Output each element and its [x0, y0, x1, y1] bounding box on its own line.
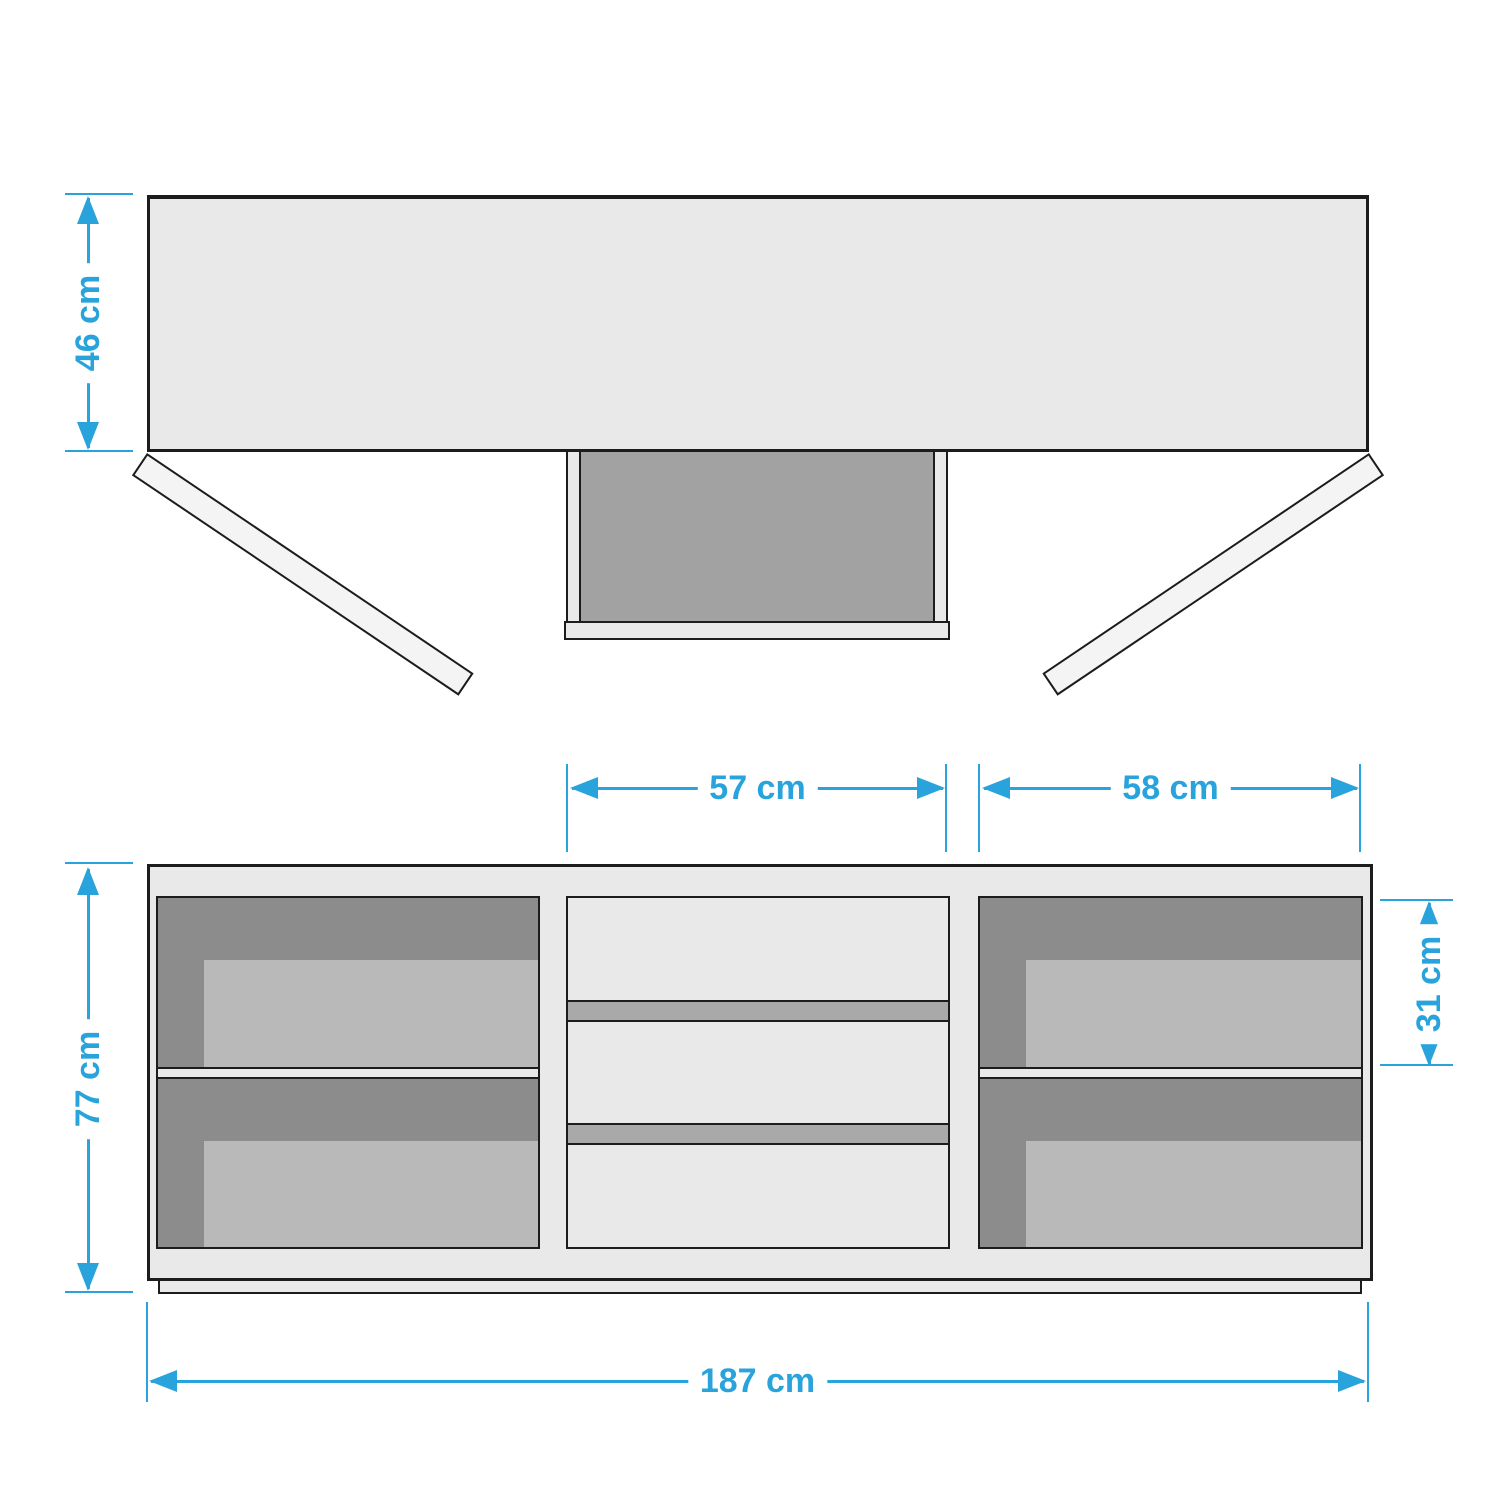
- arrowhead-down-icon: [77, 1263, 99, 1291]
- drawer-side-rail-right: [933, 451, 946, 621]
- arrowhead-right-icon: [917, 777, 945, 799]
- right-shelf-section: [978, 896, 1363, 1249]
- shelf: [158, 1067, 538, 1079]
- drawer-stack: [566, 896, 950, 1249]
- compartment-inset-shadow: [204, 960, 538, 1067]
- shelf: [980, 1067, 1361, 1079]
- extension-line: [1380, 1064, 1453, 1066]
- compartment-bottom-left: [158, 1079, 538, 1247]
- dim-right-section-width: 58 cm: [982, 777, 1359, 799]
- drawer-front-panel: [564, 621, 950, 640]
- arrowhead-right-icon: [1331, 777, 1359, 799]
- extension-line: [1380, 899, 1453, 901]
- drawer-gap-band: [568, 1123, 948, 1145]
- dim-compartment-height-label: 31 cm: [1412, 923, 1446, 1043]
- extension-line: [65, 1291, 133, 1293]
- dim-overall-width: 187 cm: [149, 1370, 1366, 1392]
- right-door-open: [1042, 453, 1384, 696]
- dim-drawer-width: 57 cm: [570, 777, 945, 799]
- dim-right-section-width-label: 58 cm: [1110, 771, 1230, 805]
- extension-line: [945, 764, 947, 852]
- extension-line: [146, 1302, 148, 1402]
- drawer-side-rail-left: [568, 451, 581, 621]
- open-drawer-top-view: [566, 449, 948, 623]
- drawer-gap-band: [568, 1000, 948, 1022]
- dimension-diagram: 46 cm: [0, 0, 1500, 1500]
- arrowhead-right-icon: [1338, 1370, 1366, 1392]
- dim-depth-label: 46 cm: [71, 263, 105, 383]
- compartment-top-left: [158, 898, 538, 1067]
- dim-overall-height: 77 cm: [77, 867, 99, 1291]
- extension-line: [65, 193, 133, 195]
- compartment-bottom-right: [980, 1079, 1361, 1247]
- compartment-inset-shadow: [1026, 960, 1361, 1067]
- left-shelf-section: [156, 896, 540, 1249]
- dim-overall-height-label: 77 cm: [71, 1019, 105, 1139]
- extension-line: [1367, 1302, 1369, 1402]
- arrowhead-down-icon: [77, 422, 99, 450]
- dim-overall-width-label: 187 cm: [688, 1364, 827, 1398]
- compartment-inset-shadow: [1026, 1141, 1361, 1247]
- compartment-inset-shadow: [204, 1141, 538, 1247]
- dim-drawer-width-label: 57 cm: [697, 771, 817, 805]
- left-door-open: [132, 453, 474, 696]
- compartment-top-right: [980, 898, 1361, 1067]
- dim-depth: 46 cm: [77, 196, 99, 450]
- dim-compartment-height: 31 cm: [1418, 901, 1440, 1066]
- extension-line: [65, 862, 133, 864]
- extension-line: [566, 764, 568, 852]
- extension-line: [978, 764, 980, 852]
- extension-line: [65, 450, 133, 452]
- top-panel: [147, 195, 1369, 452]
- extension-line: [1359, 764, 1361, 852]
